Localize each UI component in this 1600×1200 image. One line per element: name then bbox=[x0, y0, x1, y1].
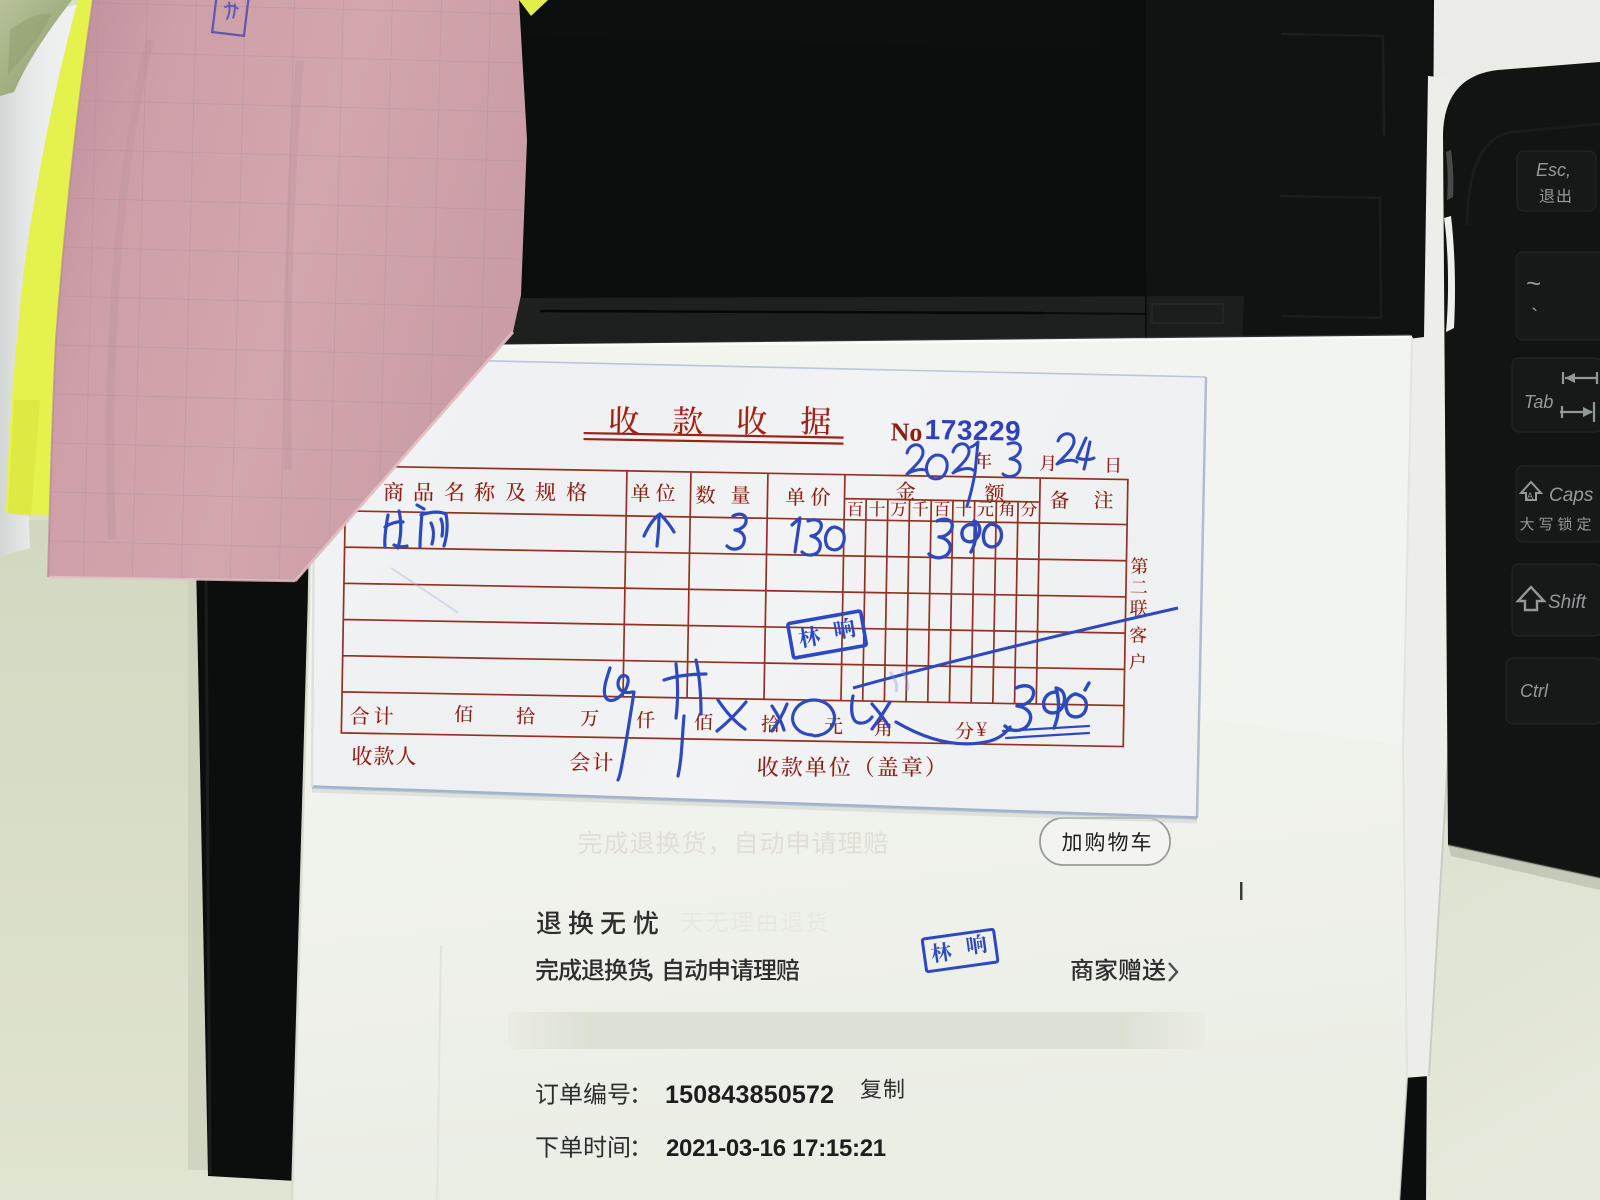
svg-text:2021-03-16 17:15:21: 2021-03-16 17:15:21 bbox=[666, 1135, 886, 1162]
svg-text:Caps: Caps bbox=[1549, 485, 1594, 506]
svg-text:Esc,: Esc, bbox=[1536, 160, 1571, 180]
svg-text:Ctrl: Ctrl bbox=[1520, 681, 1549, 701]
svg-text:~: ~ bbox=[1526, 268, 1541, 298]
svg-text:173229: 173229 bbox=[924, 414, 1021, 447]
svg-text:Shift: Shift bbox=[1548, 592, 1587, 613]
svg-text:`: ` bbox=[1531, 304, 1538, 329]
svg-text:No: No bbox=[890, 417, 922, 447]
svg-text:Tab: Tab bbox=[1524, 392, 1553, 412]
svg-text:A: A bbox=[1527, 491, 1533, 501]
svg-text:150843850572: 150843850572 bbox=[665, 1081, 834, 1109]
